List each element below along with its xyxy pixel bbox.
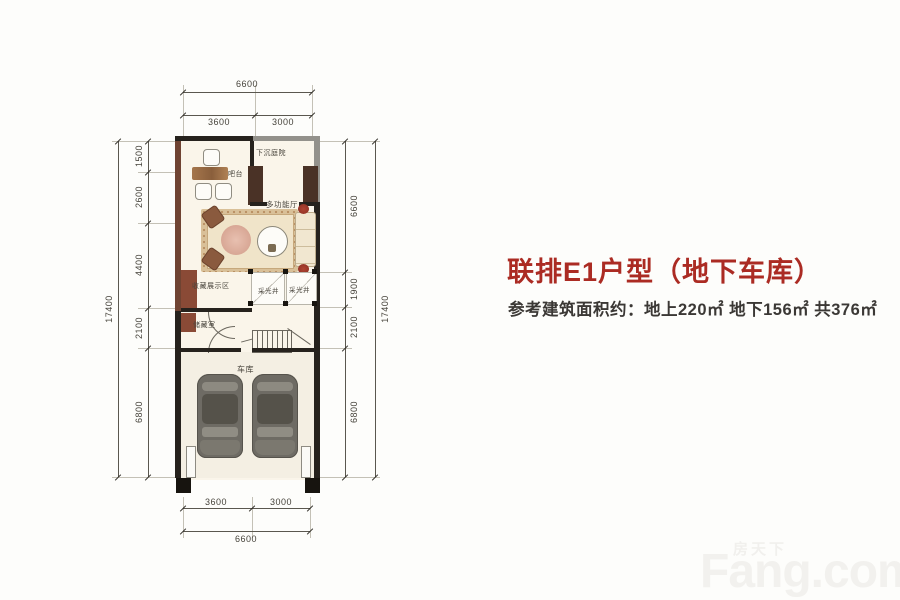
dim-label: 2600 <box>134 177 144 217</box>
column <box>283 269 288 274</box>
dim-line <box>183 531 310 532</box>
column <box>248 269 253 274</box>
wall-top-courtyard <box>253 136 320 141</box>
car-windshield <box>202 427 238 437</box>
dim-line <box>118 141 119 477</box>
dim-label: 17400 <box>380 289 390 329</box>
unit-area-info: 参考建筑面积约：地上220㎡ 地下156㎡ 共376㎡ <box>508 296 877 320</box>
wall-garage-top-right <box>252 348 320 352</box>
room-label-bar: 吧台 <box>228 169 243 179</box>
rug-medallion <box>221 225 251 255</box>
bar-stool <box>203 149 220 166</box>
bar-stool <box>215 183 232 200</box>
wall-courtyard-bottom-left <box>250 202 267 206</box>
car-roof <box>202 394 238 424</box>
wall-left-lower <box>175 311 181 478</box>
wall-top-left <box>175 136 253 141</box>
car-rear-window <box>257 382 293 391</box>
car-rear-window <box>202 382 238 391</box>
garage-door-frame <box>186 446 196 478</box>
dim-label: 6800 <box>349 392 359 432</box>
dim-label: 6600 <box>226 534 266 544</box>
watermark-fang-logo: Fang.com <box>700 544 900 599</box>
dim-label: 3600 <box>196 497 236 507</box>
dim-line <box>345 141 346 477</box>
garage-pier <box>305 478 320 493</box>
dim-extension <box>138 348 175 349</box>
dim-label: 3600 <box>199 117 239 127</box>
table-chair <box>268 244 276 252</box>
listing-image: 下沉庭院 吧台 多功能厅 收藏展示区 采光井 采光井 储藏室 车库 6600 3… <box>0 0 900 600</box>
round-table <box>257 226 288 257</box>
floorplan: 下沉庭院 吧台 多功能厅 收藏展示区 采光井 采光井 储藏室 车库 6600 3… <box>0 0 470 600</box>
cabinet-right <box>303 166 318 205</box>
dim-extension <box>112 477 175 478</box>
bar-stool <box>195 183 212 200</box>
column <box>248 301 253 306</box>
dim-line <box>183 508 310 509</box>
room-label-lightwell: 采光井 <box>289 284 310 294</box>
dim-extension <box>320 307 352 308</box>
dim-extension <box>320 477 380 478</box>
sofa <box>295 212 316 267</box>
room-label-garage: 车库 <box>237 364 254 375</box>
dim-label: 6800 <box>134 392 144 432</box>
dim-extension <box>320 348 352 349</box>
dim-label: 6600 <box>349 186 359 226</box>
column <box>312 269 317 274</box>
dim-extension <box>320 141 380 142</box>
flower-pot <box>298 204 309 214</box>
room-label-display: 收藏展示区 <box>192 281 230 291</box>
column <box>312 301 317 306</box>
dim-label: 4400 <box>134 245 144 285</box>
unit-title: 联排E1户型（地下车库） <box>507 250 822 289</box>
garage-pier <box>176 478 191 493</box>
car-hood <box>255 440 295 455</box>
room-label-lightwell: 采光井 <box>258 285 279 295</box>
dim-line <box>183 115 312 116</box>
car <box>197 374 243 458</box>
column <box>283 301 288 306</box>
cabinet-left <box>248 166 263 205</box>
dim-label: 3000 <box>263 117 303 127</box>
garage-door-frame <box>301 446 311 478</box>
room-label-courtyard: 下沉庭院 <box>256 148 286 158</box>
dim-label: 1900 <box>349 269 359 309</box>
dim-label: 3000 <box>261 497 301 507</box>
car-roof <box>257 394 293 424</box>
dim-extension <box>320 272 352 273</box>
dim-label: 17400 <box>104 289 114 329</box>
dim-extension <box>138 223 175 224</box>
wall-garage-top-left <box>181 348 241 352</box>
dim-label: 1500 <box>134 136 144 176</box>
dim-line <box>375 141 376 477</box>
car <box>252 374 298 458</box>
dim-label: 6600 <box>227 79 267 89</box>
car-windshield <box>257 427 293 437</box>
dim-label: 2100 <box>349 307 359 347</box>
bar-counter <box>192 167 228 180</box>
room-label-storage: 储藏室 <box>193 320 216 330</box>
car-hood <box>200 440 240 455</box>
dim-label: 2100 <box>134 308 144 348</box>
dim-line <box>183 92 312 93</box>
room-label-hall: 多功能厅 <box>266 199 298 210</box>
